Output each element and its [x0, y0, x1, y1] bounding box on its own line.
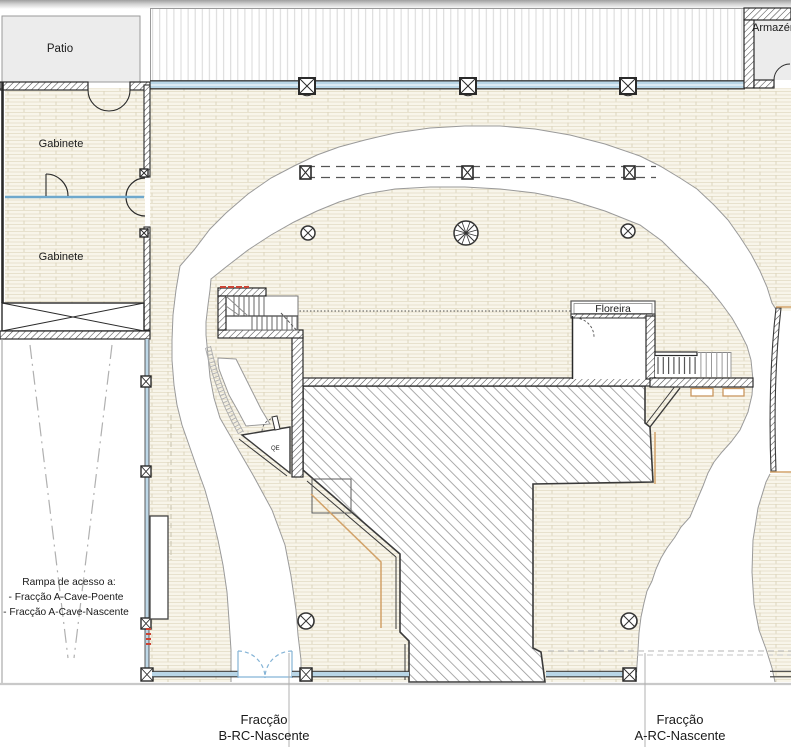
- svg-text:B-RC-Nascente: B-RC-Nascente: [218, 728, 309, 743]
- svg-text:Floreira: Floreira: [595, 303, 631, 315]
- svg-text:Rampa de acesso a:: Rampa de acesso a:: [22, 577, 115, 588]
- svg-text:Armazém: Armazém: [752, 22, 791, 34]
- svg-text:Fracção: Fracção: [657, 712, 704, 727]
- svg-text:Patio: Patio: [47, 43, 73, 55]
- svg-text:Fracção: Fracção: [241, 712, 288, 727]
- svg-text:- Fracção A-Cave-Poente: - Fracção A-Cave-Poente: [9, 592, 124, 603]
- svg-text:Gabinete: Gabinete: [39, 138, 84, 150]
- svg-text:QE: QE: [271, 446, 280, 452]
- svg-text:- Fracção A-Cave-Nascente: - Fracção A-Cave-Nascente: [3, 607, 129, 618]
- svg-text:Gabinete: Gabinete: [39, 251, 84, 263]
- svg-text:A-RC-Nascente: A-RC-Nascente: [634, 728, 725, 743]
